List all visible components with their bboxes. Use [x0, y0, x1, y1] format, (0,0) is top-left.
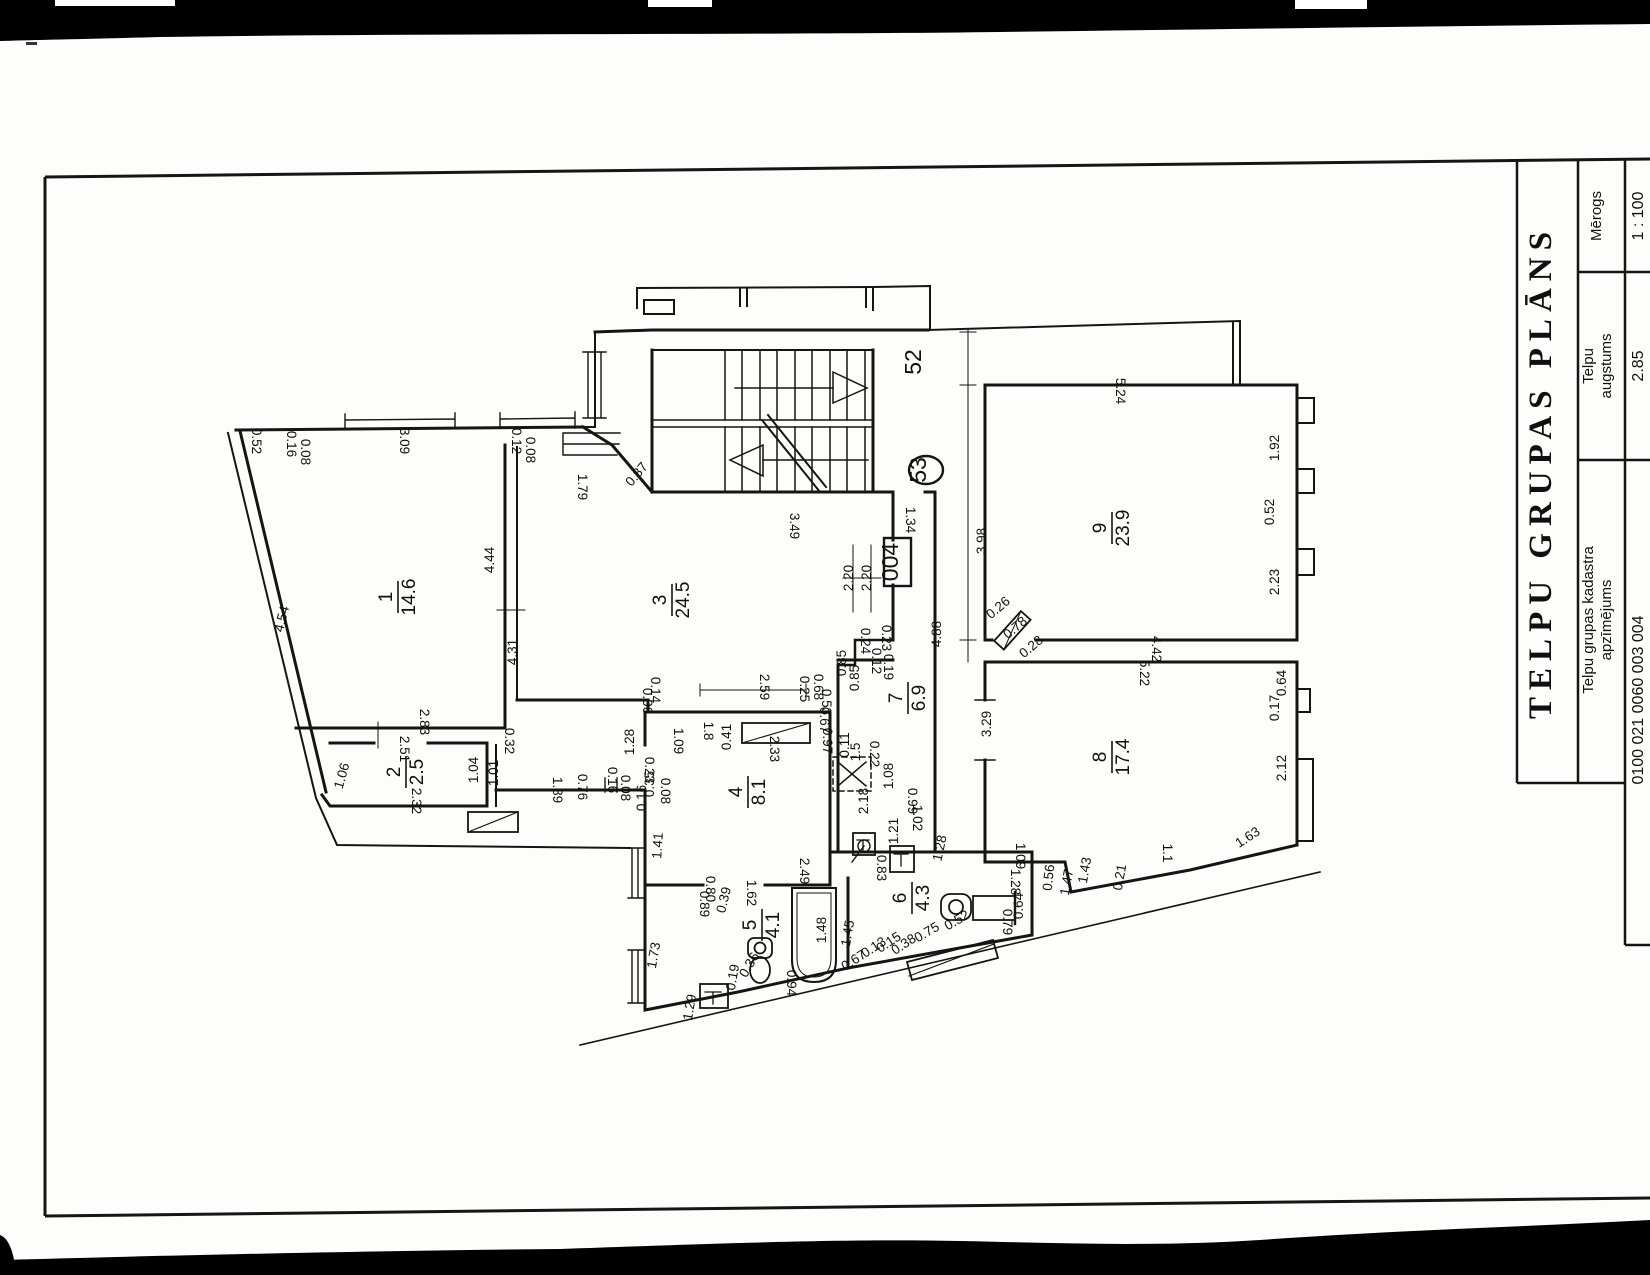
room-label: 817.4	[1090, 738, 1134, 775]
dimension-label: 0.25	[797, 676, 812, 702]
dimension-label: 3.09	[397, 428, 412, 454]
dimension-label: 2.12	[1274, 755, 1289, 781]
room-label: 54.1	[740, 909, 784, 941]
dimension-label: 0.22	[867, 741, 882, 767]
dimension-label: 1.62	[744, 880, 759, 906]
room-area: 14.6	[399, 579, 420, 616]
dimension-label: 0.64	[1274, 669, 1289, 696]
room-number: 9	[1090, 523, 1111, 534]
dimension-label: 0.19	[881, 654, 896, 680]
dimension-label: 5.24	[1113, 378, 1128, 405]
dimension-label: 5.22	[1137, 660, 1152, 686]
unit-number-label: 53	[905, 457, 931, 483]
room-number: 1	[376, 592, 397, 603]
secondary-walls	[228, 286, 1314, 848]
dimension-label: 0.06	[640, 688, 655, 714]
dimension-label: 0.64	[1011, 892, 1026, 919]
dimension-label: 1.34	[903, 507, 918, 534]
dimension-label: 0.32	[502, 728, 517, 754]
field-label-augstums-2: augstums	[1598, 333, 1615, 398]
room-label: 923.9	[1090, 510, 1134, 547]
scan-speck	[648, 0, 712, 7]
dimension-label: 0.08	[618, 775, 633, 801]
room-area: 24.5	[673, 582, 694, 619]
scan-speck	[1295, 0, 1367, 9]
dimension-label: 0.16	[634, 785, 649, 811]
dimension-label: 3.29	[979, 711, 994, 737]
dimension-label: 0.08	[658, 778, 673, 804]
dimension-label: 1.43	[1075, 856, 1094, 884]
dimension-label: 4.42	[1149, 636, 1164, 662]
room-number: 6	[890, 893, 911, 904]
dimension-label: 1.89	[550, 777, 565, 803]
dimension-label: 1.28	[930, 834, 950, 863]
dimension-label: 1.21	[886, 818, 901, 844]
room-area: 17.4	[1113, 738, 1134, 775]
dimension-label: 1.09	[1013, 843, 1028, 869]
dimension-label: 0.89	[697, 891, 712, 917]
dimension-label: 3.49	[787, 513, 802, 539]
field-label-augstums-1: Telpu	[1580, 348, 1597, 384]
dimension-label: 2.59	[757, 674, 772, 700]
room-number: 5	[740, 920, 761, 931]
dimension-label: 2.18	[856, 788, 871, 814]
field-label-merogs: Mērogs	[1588, 191, 1605, 241]
plan-canvas: TELPU GRUPAS PLĀNS Mērogs 1 : 100 Telpu …	[0, 0, 1650, 1275]
dimension-label: 4.44	[482, 546, 497, 573]
room-number: 2	[384, 767, 405, 778]
dimension-label: 2.51	[397, 736, 412, 762]
dimension-label: 1.73	[644, 941, 663, 969]
dimension-label: 1.45	[838, 919, 857, 947]
dimension-label: 1.79	[575, 474, 590, 500]
dimension-label: 1.1	[1160, 844, 1175, 863]
dimension-label: 0.52	[249, 428, 264, 454]
scan-speck	[26, 42, 37, 45]
scanned-floor-plan-sheet: TELPU GRUPAS PLĀNS Mērogs 1 : 100 Telpu …	[0, 0, 1650, 1275]
dimension-label: 1.28	[1008, 869, 1023, 895]
room-area: 2.5	[407, 759, 428, 785]
dimension-label: 2.20	[841, 565, 856, 591]
scan-speck	[55, 0, 175, 6]
room-label: 76.9	[886, 682, 930, 714]
dimension-label: 0.56	[1040, 864, 1058, 892]
field-value-merogs: 1 : 100	[1630, 191, 1647, 240]
dimension-label: 3.98	[974, 528, 989, 554]
window-lines	[345, 352, 995, 1003]
dimension-label: 0.83	[874, 855, 889, 881]
dimension-label: 0.08	[523, 437, 538, 463]
unit-number-label: 52	[900, 349, 926, 375]
field-value-augstums: 2.85	[1630, 350, 1647, 381]
room-area: 4.3	[913, 885, 934, 911]
plan-labels: 0.520.160.083.090.120.084.544.444.312.83…	[249, 349, 1289, 1021]
dimension-label: 0.75	[912, 919, 942, 945]
room-label: 114.6	[376, 579, 420, 616]
dimension-label: 4.31	[505, 639, 520, 665]
dimension-label: 0.28	[1016, 632, 1046, 660]
room-number: 7	[886, 693, 907, 704]
staircase	[652, 350, 873, 492]
dimension-label: 4.54	[271, 604, 292, 634]
dimension-label: 0.26	[983, 593, 1013, 621]
scan-blob-bottom-left	[0, 1235, 16, 1275]
dimension-label: 0.36	[736, 950, 762, 980]
dimension-label: 2.83	[417, 709, 432, 735]
room-label: 48.1	[726, 776, 770, 808]
dimension-label: 0.52	[942, 907, 972, 933]
dimension-label: 0.16	[605, 767, 620, 793]
dimension-label: 1.02	[910, 805, 925, 831]
room-label: 22.5	[384, 756, 428, 788]
unit-number-label: 004	[877, 543, 903, 582]
scan-bar-top	[0, 0, 1650, 41]
dimension-label: 1.08	[881, 763, 896, 789]
dimension-label: 1.92	[1267, 435, 1282, 461]
room-number: 8	[1090, 752, 1111, 763]
dimension-label: 1.63	[1232, 824, 1262, 851]
room-area: 6.9	[909, 685, 930, 711]
stair-direction-arrow	[833, 372, 867, 403]
field-value-kadastra: 0100 021 0060 003 004	[1630, 615, 1647, 784]
dimension-label: 2.20	[859, 565, 874, 591]
dimension-label: 0.97	[820, 728, 835, 754]
dimension-label: 2.33	[767, 736, 782, 762]
scan-artifact-bars	[0, 0, 1650, 1275]
field-label-kadastra-2: apzīmējums	[1598, 580, 1615, 661]
dimension-label: 4.88	[929, 621, 944, 647]
room-number: 3	[650, 595, 671, 606]
room-label: 324.5	[650, 582, 694, 619]
room-label: 64.3	[890, 882, 934, 914]
room-number: 4	[726, 786, 747, 797]
dimension-label: 1.5	[848, 743, 863, 762]
dimension-label: 1.01	[486, 760, 501, 786]
field-label-kadastra-1: Telpu grupas kadastra	[1580, 546, 1597, 694]
dimension-label: 2.49	[797, 858, 812, 884]
room-area: 8.1	[749, 779, 770, 805]
dimension-label: 0.08	[298, 439, 313, 465]
dimension-label: 1.48	[814, 917, 829, 943]
dimension-label: 1.8	[701, 722, 716, 741]
dimension-label: 2.32	[409, 788, 424, 814]
dimension-label: 0.76	[575, 774, 590, 800]
dimension-label: 0.41	[719, 724, 734, 750]
scan-bar-bottom	[0, 1220, 1650, 1275]
dimension-label: 0.85	[847, 665, 862, 691]
dimension-label: 1.04	[466, 756, 481, 783]
dimension-label: 1.41	[649, 832, 666, 859]
title-block: TELPU GRUPAS PLĀNS Mērogs 1 : 100 Telpu …	[1517, 160, 1650, 945]
document-title: TELPU GRUPAS PLĀNS	[1523, 225, 1559, 719]
dimension-label: 0.16	[284, 431, 299, 457]
dimension-label: 1.09	[671, 728, 686, 754]
dimension-label: 1.28	[622, 729, 637, 755]
dimension-label: 0.12	[509, 428, 524, 454]
dimension-label: 2.23	[1267, 569, 1282, 595]
dimension-label: 1.06	[331, 761, 353, 790]
dimension-label: 0.21	[1110, 863, 1129, 891]
dimension-label: 0.17	[1267, 695, 1282, 721]
dimension-label: 0.52	[1262, 499, 1277, 525]
room-area: 4.1	[763, 912, 784, 938]
stair-direction-arrow	[730, 445, 763, 476]
room-area: 23.9	[1113, 510, 1134, 547]
dimension-label: 0.94	[784, 970, 799, 997]
